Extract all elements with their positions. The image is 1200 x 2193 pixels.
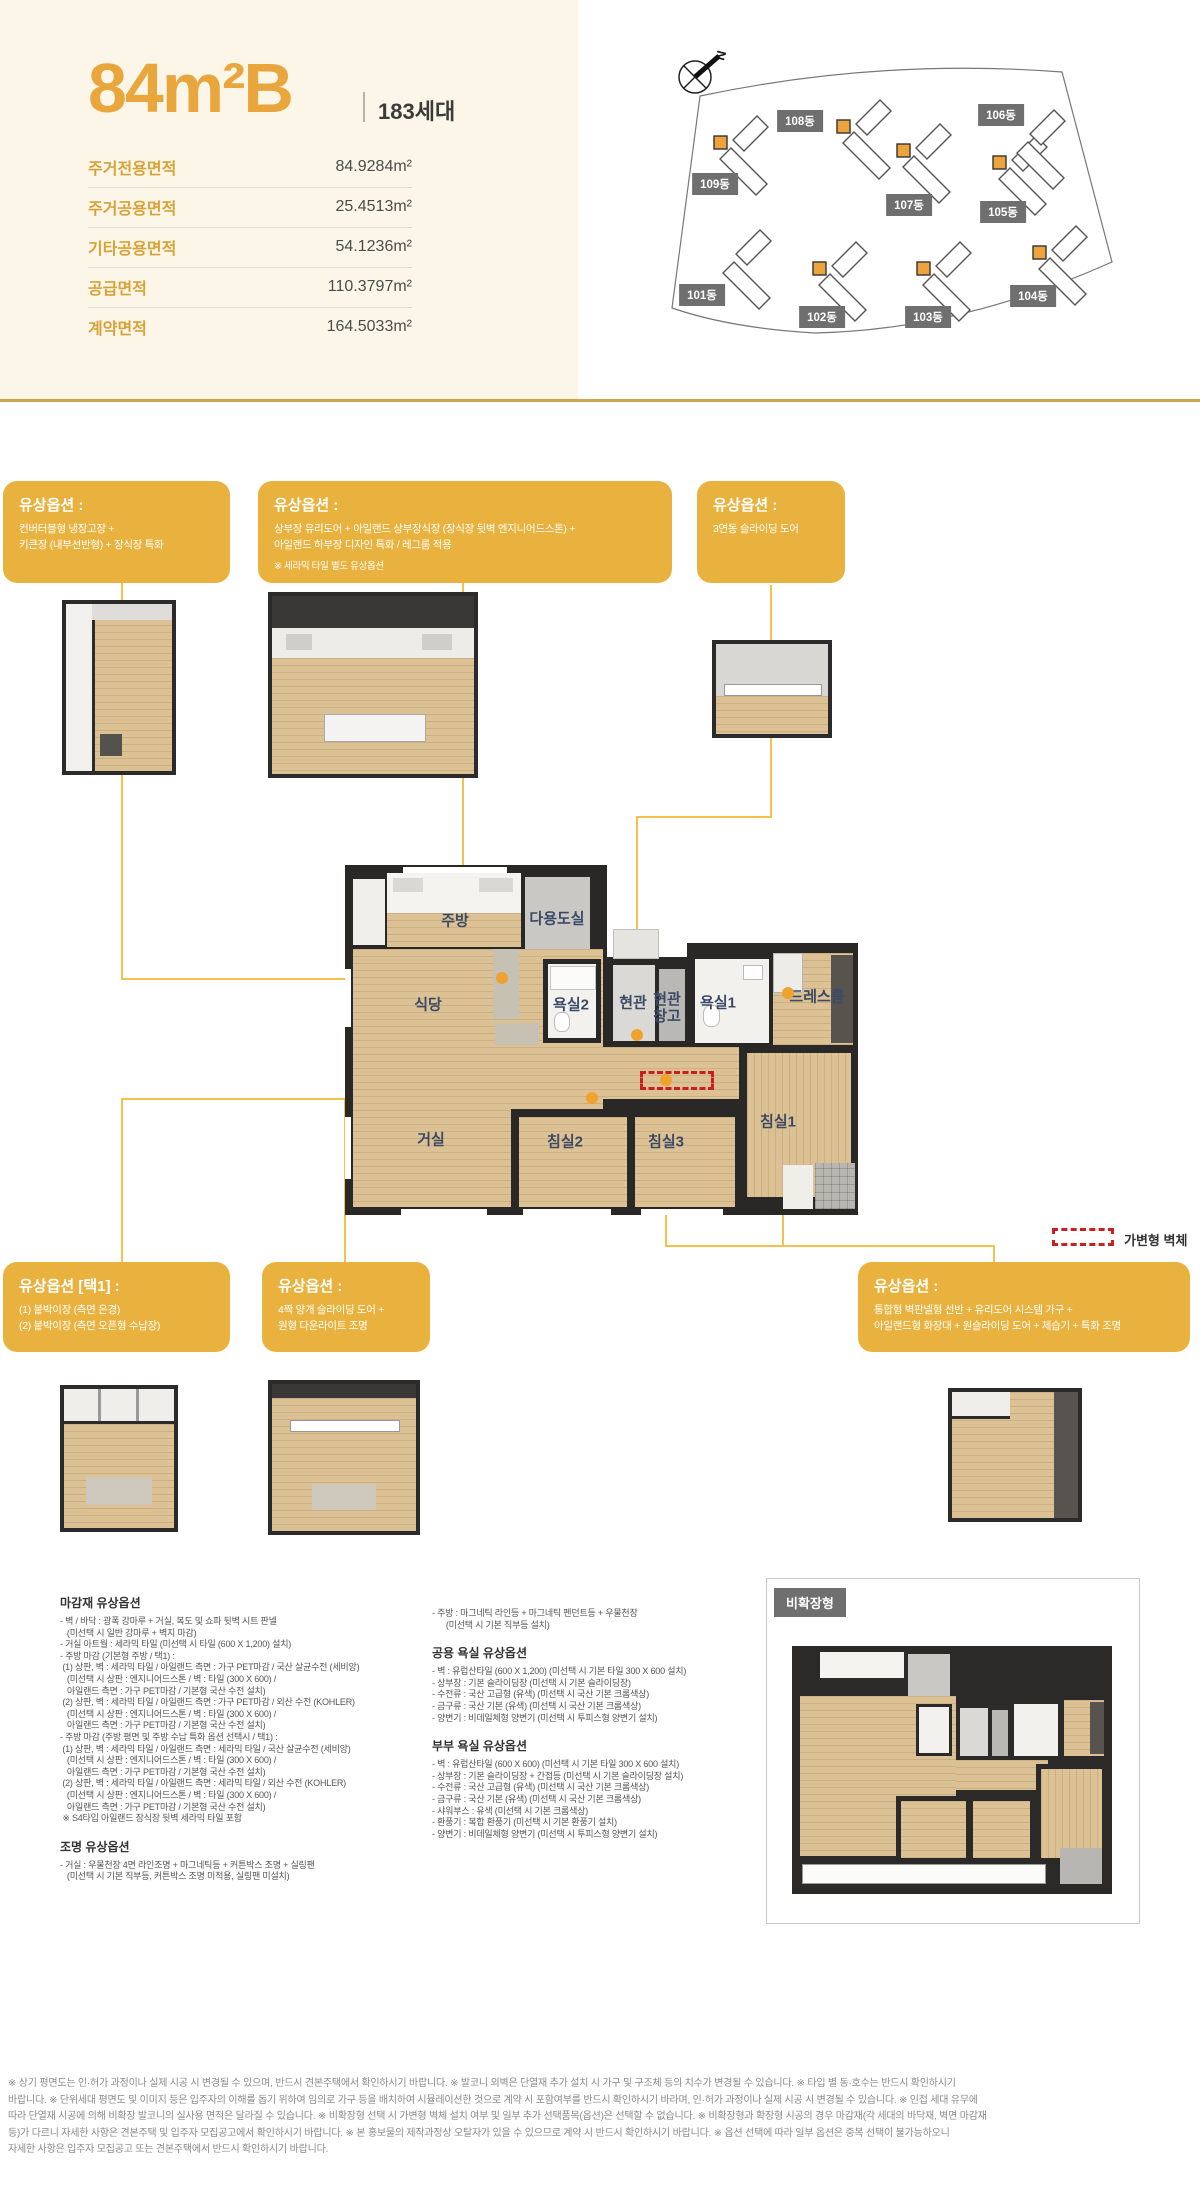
area-label: 주거전용면적 bbox=[88, 155, 222, 179]
spec-line: - 벽 / 바닥 : 광폭 강마루 + 거실, 복도 및 쇼파 뒷벽 시트 판넬 bbox=[60, 1616, 432, 1628]
leader-line bbox=[665, 1245, 995, 1247]
spec-line: (1) 상판, 벽 : 세라믹 타일 / 아일랜드 측면 : 세라믹 타일 / … bbox=[60, 1744, 432, 1756]
site-plan-map bbox=[580, 20, 1200, 350]
room-label: 식당 bbox=[414, 996, 442, 1013]
area-value: 25.4513m² bbox=[336, 198, 413, 216]
households-count: 183세대 bbox=[378, 94, 455, 126]
spec-line: - 양변기 : 비데일체형 양변기 (미선택 시 투피스형 양변기 설치) bbox=[432, 1713, 768, 1725]
area-label: 기타공용면적 bbox=[88, 235, 222, 259]
spec-line: - 환풍기 : 복합 환풍기 (미선택 시 기본 환풍기 설치) bbox=[432, 1817, 768, 1829]
option-title: 유상옵션 : bbox=[874, 1275, 1174, 1296]
lighting-spec-title: 조명 유상옵션 bbox=[60, 1838, 432, 1855]
option-box-wardrobe: 유상옵션 [택1] : (1) 붙박이장 (측면 은경)(2) 붙박이장 (측면… bbox=[3, 1262, 230, 1352]
option-line: 키큰장 (내부선반형) + 장식장 특화 bbox=[19, 538, 214, 554]
option-note: ※ 세라믹 타일 별도 유상옵션 bbox=[274, 558, 656, 572]
building-badge: 103동 bbox=[905, 306, 951, 328]
bath-spec-column: - 주방 : 마그네틱 라인등 + 마그네틱 펜던트등 + 우물천장 (미선택 … bbox=[432, 1608, 768, 1840]
spec-line: 아일랜드 측면 : 가구 PET마감 / 기본형 국산 수전 설치) bbox=[60, 1720, 432, 1732]
option-box-sliding4-light: 유상옵션 : 4짝 양개 슬라이딩 도어 +원형 다운라이트 조명 bbox=[262, 1262, 430, 1352]
spec-line: - 벽 : 유럽산타일 (600 X 600) (미선택 시 기본 타일 300… bbox=[432, 1759, 768, 1771]
area-label: 주거공용면적 bbox=[88, 195, 222, 219]
spec-line: (미선택 시 상판 : 엔지니어드스톤 / 벽 : 타일 (300 X 600)… bbox=[60, 1674, 432, 1686]
option-title: 유상옵션 : bbox=[19, 494, 214, 515]
spec-line: - 주방 : 마그네틱 라인등 + 마그네틱 펜던트등 + 우물천장 bbox=[432, 1608, 768, 1620]
building-badge: 108동 bbox=[777, 110, 823, 132]
option-line: 상부장 유리도어 + 아일랜드 상부장식장 (장식장 뒷벽 엔지니어드스톤) + bbox=[274, 522, 656, 538]
floor-plan bbox=[345, 865, 858, 1215]
spec-line: (미선택 시 상판 : 엔지니어드스톤 / 벽 : 타일 (300 X 600)… bbox=[60, 1755, 432, 1767]
spec-line: (2) 상판, 벽 : 세라믹 타일 / 아일랜드 측면 : 세라믹 타일 / … bbox=[60, 1778, 432, 1790]
building-badge: 102동 bbox=[799, 306, 845, 328]
area-value: 110.3797m² bbox=[328, 278, 412, 296]
area-label: 공급면적 bbox=[88, 275, 222, 299]
room-label: 현관 bbox=[619, 994, 647, 1011]
option-title: 유상옵션 : bbox=[274, 494, 656, 515]
entry-step bbox=[613, 929, 659, 959]
room-label: 다용도실 bbox=[529, 910, 584, 927]
option-line: 원형 다운라이트 조명 bbox=[278, 1319, 414, 1335]
leader-line bbox=[121, 1100, 123, 1262]
area-table-row: 공급면적 110.3797m² bbox=[88, 268, 412, 308]
compass-icon bbox=[679, 56, 719, 93]
finish-spec-title: 마감재 유상옵션 bbox=[60, 1594, 432, 1611]
spec-line: (미선택 시 상판 : 엔지니어드스톤 / 벽 : 타일 (300 X 600)… bbox=[60, 1709, 432, 1721]
footer-disclaimer: ※ 상기 평면도는 인·허가 과정이나 실제 시공 시 변경될 수 있으며, 반… bbox=[8, 2076, 1194, 2159]
option-line: 아일랜드 하부장 디자인 특화 / 레그룸 적용 bbox=[274, 538, 656, 554]
area-table-row: 계약면적 164.5033m² bbox=[88, 308, 412, 347]
callout-dot bbox=[631, 1029, 643, 1041]
spec-line: 아일랜드 측면 : 가구 PET마감 / 기본형 국산 수전 설치) bbox=[60, 1767, 432, 1779]
area-table: 주거전용면적 84.9284m² 주거공용면적 25.4513m² 기타공용면적… bbox=[88, 148, 412, 347]
spec-line: - 주방 마감 (기본형 주방 / 택1) : bbox=[60, 1651, 432, 1663]
bedroom2-floor bbox=[511, 1109, 627, 1207]
master-balcony-closet bbox=[783, 1165, 813, 1209]
bedroom3-floor bbox=[627, 1109, 735, 1207]
area-table-row: 주거공용면적 25.4513m² bbox=[88, 188, 412, 228]
bench bbox=[495, 1023, 539, 1045]
spec-line: - 금구류 : 국산 기본 (유색) (미선택 시 국산 기본 크롬색상) bbox=[432, 1794, 768, 1806]
callout-dot bbox=[586, 1092, 598, 1104]
area-value: 84.9284m² bbox=[336, 158, 413, 176]
footer-line: 등)가 다르니 자세한 사항은 견본주택 및 입주자 모집공고에서 확인하시기 … bbox=[8, 2126, 1194, 2143]
building-badge: 101동 bbox=[679, 284, 725, 306]
option-box-dressroom: 유상옵션 : 통합형 벽판넬형 선반 + 유리도어 시스템 가구 +아일랜드형 … bbox=[858, 1262, 1190, 1352]
room-label: 현관창고 bbox=[649, 991, 685, 1026]
spec-line: (미선택 시 기본 직부등 설치) bbox=[432, 1620, 768, 1632]
pantry-column bbox=[493, 949, 519, 1019]
title-divider bbox=[363, 92, 365, 122]
area-value: 164.5033m² bbox=[327, 318, 412, 336]
master-bath-title: 부부 욕실 유상옵션 bbox=[432, 1737, 768, 1754]
page-title: 84m²B bbox=[88, 48, 292, 128]
option-title: 유상옵션 : bbox=[713, 494, 829, 515]
brochure-page: 84m²B 183세대 주거전용면적 84.9284m² 주거공용면적 25.4… bbox=[0, 0, 1200, 2193]
spec-line: (2) 상판, 벽 : 세라믹 타일 / 아일랜드 측면 : 가구 PET마감 … bbox=[60, 1697, 432, 1709]
option-thumb-kitchen-island bbox=[268, 592, 478, 778]
spec-line: ※ S4타입 아일랜드 장식장 뒷벽 세라믹 타일 포함 bbox=[60, 1813, 432, 1825]
non-expanded-mini-plan bbox=[792, 1646, 1112, 1894]
spec-line: (미선택 시 기본 직부등, 커튼박스 조명 미적용, 실링팬 미설치) bbox=[60, 1871, 432, 1883]
room-label: 침실2 bbox=[547, 1133, 583, 1150]
building-badge: 104동 bbox=[1010, 285, 1056, 307]
option-line: (1) 붙박이장 (측면 은경) bbox=[19, 1303, 214, 1319]
balcony-closet bbox=[353, 879, 385, 945]
spec-line: - 수전류 : 국산 고급형 (유색) (미선택 시 국산 기본 크롬색상) bbox=[432, 1689, 768, 1701]
building-badge: 109동 bbox=[692, 173, 738, 195]
option-thumb-kitchen-storage bbox=[62, 600, 176, 775]
spec-line: - 상부장 : 기본 슬라이딩장 + 간접등 (미선택 시 기본 슬라이딩장 설… bbox=[432, 1771, 768, 1783]
spec-line: 아일랜드 측면 : 가구 PET마감 / 기본형 국산 수전 설치) bbox=[60, 1686, 432, 1698]
spec-line: - 상부장 : 기본 슬라이딩장 (미선택 시 기본 슬라이딩장) bbox=[432, 1678, 768, 1690]
kitchen-counter bbox=[387, 873, 521, 913]
room-label: 침실3 bbox=[648, 1133, 684, 1150]
movable-wall-marker bbox=[640, 1071, 714, 1090]
spec-line: - 거실 아트월 : 세라믹 타일 (미선택 시 타일 (600 X 1,200… bbox=[60, 1639, 432, 1651]
common-bath-title: 공용 욕실 유상옵션 bbox=[432, 1644, 768, 1661]
area-table-row: 기타공용면적 54.1236m² bbox=[88, 228, 412, 268]
option-line: 통합형 벽판넬형 선반 + 유리도어 시스템 가구 + bbox=[874, 1303, 1174, 1319]
movable-wall-legend-label: 가변형 벽체 bbox=[1124, 1230, 1187, 1249]
option-line: 아일랜드형 화장대 + 원슬라이딩 도어 + 제습기 + 특화 조명 bbox=[874, 1319, 1174, 1335]
leader-line bbox=[993, 1245, 995, 1262]
callout-dot bbox=[660, 1074, 672, 1086]
room-label: 욕실2 bbox=[553, 996, 589, 1013]
callout-dot bbox=[782, 987, 794, 999]
footer-line: 따라 단열재 시공에 의해 비확장 발코니의 실사용 면적은 달라질 수 있습니… bbox=[8, 2109, 1194, 2126]
movable-wall-legend-swatch bbox=[1052, 1228, 1114, 1246]
room-label: 주방 bbox=[441, 912, 469, 929]
master-balcony-tile bbox=[815, 1163, 855, 1209]
area-value: 54.1236m² bbox=[336, 238, 413, 256]
room-label: 거실 bbox=[417, 1131, 445, 1148]
option-box-sliding-door: 유상옵션 : 3연동 슬라이딩 도어 bbox=[697, 481, 845, 583]
option-title: 유상옵션 [택1] : bbox=[19, 1275, 214, 1296]
area-label: 계약면적 bbox=[88, 315, 222, 339]
spec-line: - 거실 : 우물천장 4면 라인조명 + 마그네틱등 + 커튼박스 조명 + … bbox=[60, 1860, 432, 1872]
room-label: 욕실1 bbox=[700, 994, 736, 1011]
option-line: 4짝 양개 슬라이딩 도어 + bbox=[278, 1303, 414, 1319]
option-box-kitchen-storage: 유상옵션 : 컨버터블형 냉장고장 +키큰장 (내부선반형) + 장식장 특화 bbox=[3, 481, 230, 583]
footer-line: 바랍니다. ※ 단위세대 평면도 및 이미지 등은 입주자의 이해를 돕기 위하… bbox=[8, 2093, 1194, 2110]
option-thumb-dressroom bbox=[948, 1388, 1082, 1522]
building-badge: 107동 bbox=[886, 194, 932, 216]
non-expanded-badge: 비확장형 bbox=[774, 1588, 846, 1617]
area-table-row: 주거전용면적 84.9284m² bbox=[88, 148, 412, 188]
option-thumb-entry-door bbox=[712, 640, 832, 738]
option-line: 3연동 슬라이딩 도어 bbox=[713, 522, 829, 538]
room-label: 드레스룸 bbox=[789, 988, 844, 1005]
option-line: (2) 붙박이장 (측면 오픈형 수납장) bbox=[19, 1319, 214, 1335]
option-thumb-sliding4 bbox=[268, 1380, 420, 1535]
leader-line bbox=[636, 816, 772, 818]
building-badge: 105동 bbox=[980, 201, 1026, 223]
callout-dot bbox=[496, 972, 508, 984]
option-title: 유상옵션 : bbox=[278, 1275, 414, 1296]
building-badge: 106동 bbox=[978, 104, 1024, 126]
spec-line: 아일랜드 측면 : 가구 PET마감 / 기본형 국산 수전 설치) bbox=[60, 1802, 432, 1814]
finish-spec-column: 마감재 유상옵션 - 벽 / 바닥 : 광폭 강마루 + 거실, 복도 및 쇼파… bbox=[60, 1594, 432, 1883]
header-divider-line bbox=[0, 399, 1200, 402]
spec-line: - 수전류 : 국산 고급형 (유색) (미선택 시 국산 기본 크롬색상) bbox=[432, 1782, 768, 1794]
footer-line: ※ 상기 평면도는 인·허가 과정이나 실제 시공 시 변경될 수 있으며, 반… bbox=[8, 2076, 1194, 2093]
room-label: 침실1 bbox=[760, 1113, 796, 1130]
option-box-kitchen-island: 유상옵션 : 상부장 유리도어 + 아일랜드 상부장식장 (장식장 뒷벽 엔지니… bbox=[258, 481, 672, 583]
spec-line: - 양변기 : 비데일체형 양변기 (미선택 시 투피스형 양변기 설치) bbox=[432, 1829, 768, 1841]
option-thumb-wardrobe bbox=[60, 1385, 178, 1532]
spec-line: - 샤워부스 : 유색 (미선택 시 기본 크롬색상) bbox=[432, 1806, 768, 1818]
spec-line: (1) 상판, 벽 : 세라믹 타일 / 아일랜드 측면 : 가구 PET마감 … bbox=[60, 1662, 432, 1674]
spec-line: - 주방 마감 (주방 평면 및 주방 수납 특화 옵션 선택시 / 택1) : bbox=[60, 1732, 432, 1744]
spec-line: (미선택 시 일반 강마루 + 벽지 마감) bbox=[60, 1628, 432, 1640]
option-line: 컨버터블형 냉장고장 + bbox=[19, 522, 214, 538]
spec-line: - 금구류 : 국산 기본 (유색) (미선택 시 국산 기본 크롬색상) bbox=[432, 1701, 768, 1713]
footer-line: 자세한 사항은 입주자 모집공고 또는 견본주택에서 반드시 확인하시기 바랍니… bbox=[8, 2142, 1194, 2159]
spec-line: - 벽 : 유럽산타일 (600 X 1,200) (미선택 시 기본 타일 3… bbox=[432, 1666, 768, 1678]
spec-line: (미선택 시 상판 : 엔지니어드스톤 / 벽 : 타일 (300 X 600)… bbox=[60, 1790, 432, 1802]
